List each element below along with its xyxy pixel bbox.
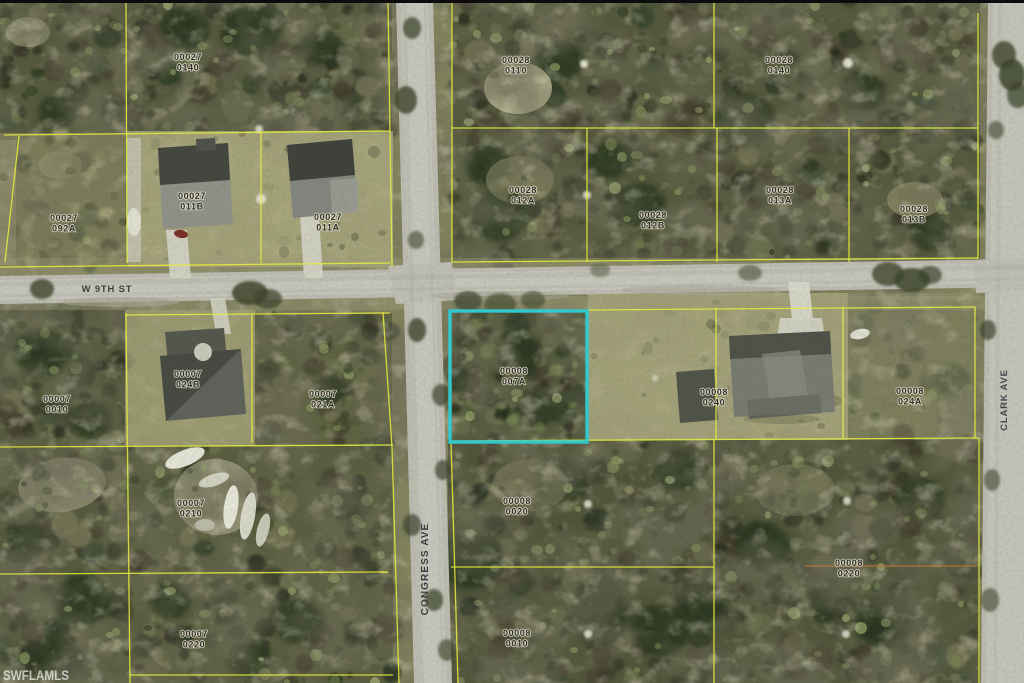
svg-text:00008: 00008 <box>503 496 531 506</box>
svg-text:00007: 00007 <box>43 394 71 404</box>
svg-text:0140: 0140 <box>768 66 790 76</box>
svg-text:00007: 00007 <box>180 629 208 639</box>
svg-text:00007: 00007 <box>174 369 202 379</box>
svg-text:W 9TH ST: W 9TH ST <box>82 284 133 295</box>
svg-text:00028: 00028 <box>502 55 530 65</box>
svg-text:00028: 00028 <box>639 210 667 220</box>
svg-text:012A: 012A <box>511 196 535 206</box>
svg-text:CONGRESS AVE: CONGRESS AVE <box>420 523 431 616</box>
svg-text:00027: 00027 <box>50 213 78 223</box>
svg-text:00008: 00008 <box>503 628 531 638</box>
svg-text:00008: 00008 <box>500 366 528 376</box>
svg-text:00008: 00008 <box>896 386 924 396</box>
svg-text:012B: 012B <box>641 221 665 231</box>
svg-text:00028: 00028 <box>765 55 793 65</box>
svg-text:00007: 00007 <box>177 498 205 508</box>
svg-text:00028: 00028 <box>766 185 794 195</box>
svg-text:00027: 00027 <box>314 212 342 222</box>
svg-text:00027: 00027 <box>178 191 206 201</box>
svg-text:0210: 0210 <box>180 509 202 519</box>
svg-text:0140: 0140 <box>177 63 199 73</box>
svg-text:021A: 021A <box>311 400 335 410</box>
svg-text:092A: 092A <box>52 224 76 234</box>
svg-text:00008: 00008 <box>700 387 728 397</box>
svg-text:0220: 0220 <box>183 640 205 650</box>
svg-text:0220: 0220 <box>838 569 860 579</box>
svg-text:013B: 013B <box>902 215 926 225</box>
svg-text:0010: 0010 <box>506 639 528 649</box>
svg-text:013A: 013A <box>768 196 792 206</box>
svg-text:00007: 00007 <box>309 389 337 399</box>
svg-text:024B: 024B <box>176 380 200 390</box>
svg-text:0240: 0240 <box>703 398 725 408</box>
svg-text:0020: 0020 <box>506 507 528 517</box>
svg-text:011B: 011B <box>180 202 203 212</box>
svg-text:007A: 007A <box>502 377 526 387</box>
svg-text:00027: 00027 <box>174 52 202 62</box>
svg-text:024A: 024A <box>898 397 922 407</box>
svg-text:0010: 0010 <box>46 405 68 415</box>
svg-text:SWFLAMLS: SWFLAMLS <box>3 668 69 683</box>
svg-text:00028: 00028 <box>509 185 537 195</box>
svg-text:011A: 011A <box>316 223 339 233</box>
svg-text:CLARK AVE: CLARK AVE <box>999 369 1010 431</box>
svg-text:00028: 00028 <box>900 204 928 214</box>
svg-text:0110: 0110 <box>505 66 527 76</box>
svg-text:00008: 00008 <box>835 558 863 568</box>
